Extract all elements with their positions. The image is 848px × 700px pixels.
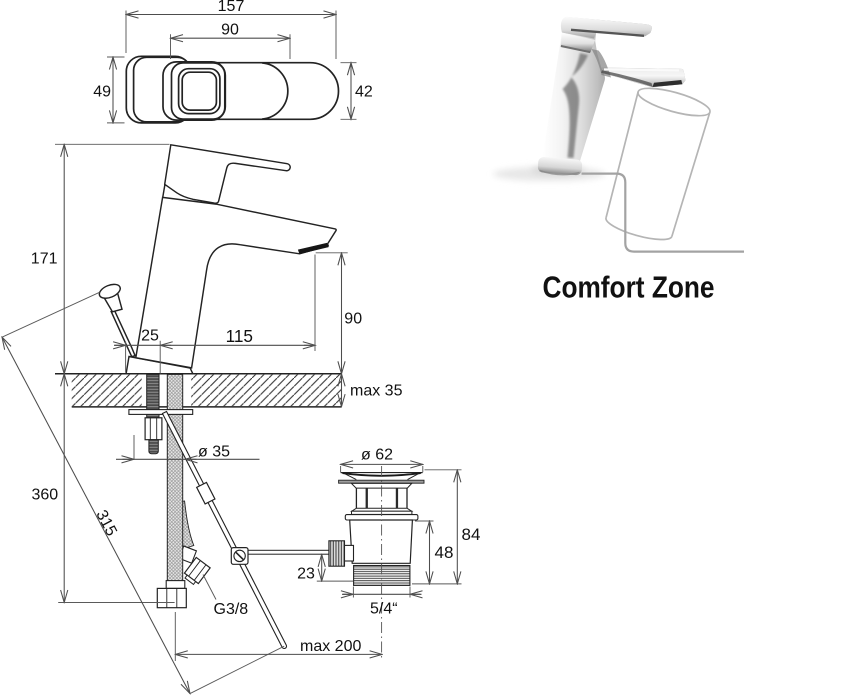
svg-text:5/4“: 5/4“ xyxy=(370,601,398,618)
svg-text:ø 35: ø 35 xyxy=(198,444,230,461)
svg-text:25: 25 xyxy=(141,328,159,345)
svg-text:G3/8: G3/8 xyxy=(214,601,249,618)
svg-text:23: 23 xyxy=(297,566,315,583)
svg-text:42: 42 xyxy=(355,84,373,101)
svg-text:360: 360 xyxy=(31,486,58,503)
svg-text:48: 48 xyxy=(435,543,454,562)
svg-text:max 200: max 200 xyxy=(300,638,361,655)
svg-text:157: 157 xyxy=(218,0,245,15)
svg-text:84: 84 xyxy=(462,525,481,544)
svg-text:115: 115 xyxy=(226,326,253,346)
svg-text:Comfort Zone: Comfort Zone xyxy=(543,270,715,305)
svg-text:171: 171 xyxy=(31,251,58,268)
svg-text:90: 90 xyxy=(221,22,239,39)
svg-text:ø 62: ø 62 xyxy=(361,447,393,464)
svg-text:90: 90 xyxy=(344,311,362,328)
svg-text:49: 49 xyxy=(93,84,111,101)
svg-text:max 35: max 35 xyxy=(350,383,403,400)
